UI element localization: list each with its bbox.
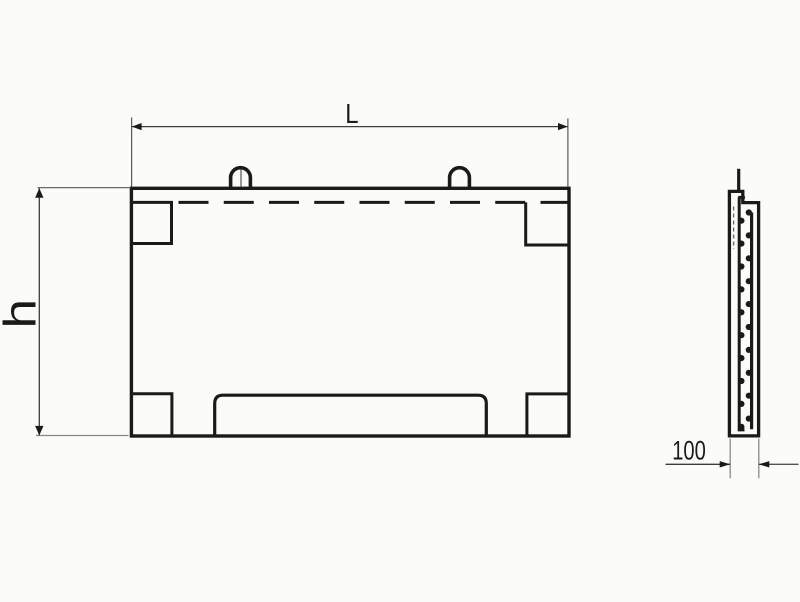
svg-text:100: 100 xyxy=(672,436,706,465)
svg-text:L: L xyxy=(345,97,358,129)
svg-text:h: h xyxy=(0,299,46,329)
